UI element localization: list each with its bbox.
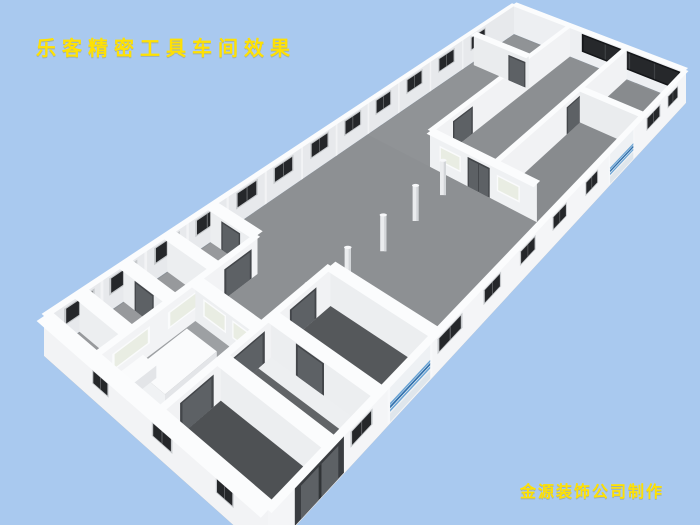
window-mullion <box>283 162 284 176</box>
glass-band-separator <box>605 44 606 60</box>
glass-band-separator <box>629 54 630 70</box>
column-cap <box>439 159 446 162</box>
double-door-leaf <box>469 159 478 191</box>
window-mullion <box>673 92 674 103</box>
nw-exterior-wall-pilaster <box>336 121 338 156</box>
nw-exterior-wall-pilaster <box>368 100 370 135</box>
window-mullion <box>446 54 447 66</box>
nw-exterior-wall-pilaster <box>430 59 431 92</box>
title-caption: 乐客精密工具车间效果 <box>36 32 296 61</box>
window-mullion <box>560 210 561 222</box>
window-mullion <box>224 486 225 499</box>
nw-exterior-wall-pilaster <box>462 38 463 70</box>
window-mullion <box>653 112 654 123</box>
column-shade <box>416 185 418 221</box>
nw-exterior-wall-pilaster <box>265 168 267 205</box>
column-shade <box>444 160 446 195</box>
credit-caption: 金源装饰公司制作 <box>520 478 664 502</box>
column-cap <box>344 246 352 249</box>
double-door-leaf <box>479 164 488 197</box>
column-shade <box>384 215 386 251</box>
rendering-canvas: 乐客精密工具车间效果 金源装饰公司制作 <box>0 0 700 525</box>
glass-band-separator <box>654 63 655 79</box>
column-cap <box>380 213 387 216</box>
window-mullion <box>450 326 451 340</box>
window-mullion <box>414 75 415 88</box>
window-mullion <box>207 214 208 229</box>
window-mullion <box>492 282 493 295</box>
column-cap <box>412 184 419 187</box>
window-mullion <box>361 421 362 435</box>
window-mullion <box>162 431 163 444</box>
window-mullion <box>383 96 384 109</box>
window-mullion <box>319 138 320 152</box>
window-mullion <box>100 377 101 390</box>
entrance-door-gap <box>319 465 320 500</box>
nw-exterior-wall-pilaster <box>398 80 400 114</box>
window-mullion <box>247 187 248 201</box>
window-mullion <box>592 177 593 189</box>
window-mullion <box>353 116 354 129</box>
workshop-3d-rendering <box>0 0 700 525</box>
window-mullion <box>528 244 529 257</box>
nw-exterior-wall-pilaster <box>301 144 303 180</box>
